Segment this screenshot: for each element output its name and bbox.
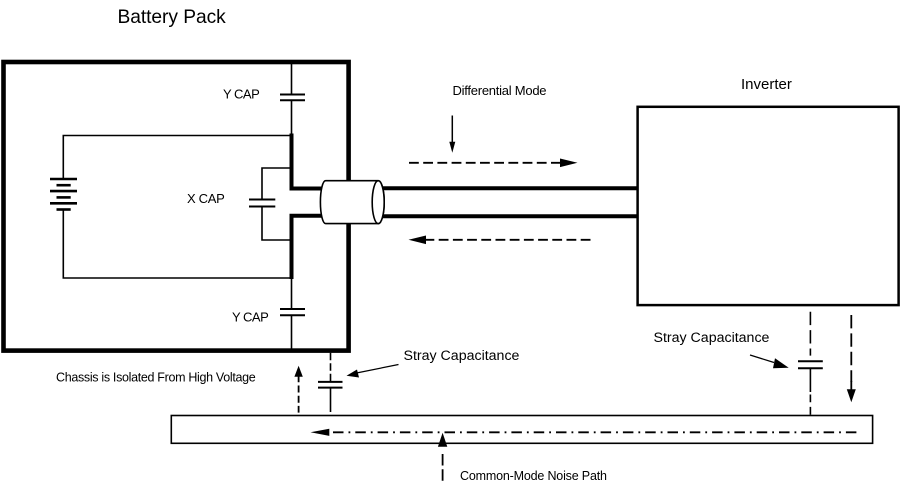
svg-text:Common-Mode Noise Path: Common-Mode Noise Path — [460, 469, 607, 483]
svg-text:Stray Capacitance: Stray Capacitance — [404, 348, 520, 364]
svg-text:X CAP: X CAP — [187, 191, 225, 206]
svg-text:Chassis is Isolated From High: Chassis is Isolated From High Voltage — [56, 371, 256, 385]
svg-text:Differential Mode: Differential Mode — [453, 83, 547, 98]
svg-text:Y CAP: Y CAP — [232, 310, 268, 325]
svg-text:Stray Capacitance: Stray Capacitance — [654, 330, 770, 346]
svg-text:Y CAP: Y CAP — [223, 87, 259, 102]
svg-text:Battery Pack: Battery Pack — [118, 7, 227, 28]
svg-text:Inverter: Inverter — [741, 76, 792, 93]
